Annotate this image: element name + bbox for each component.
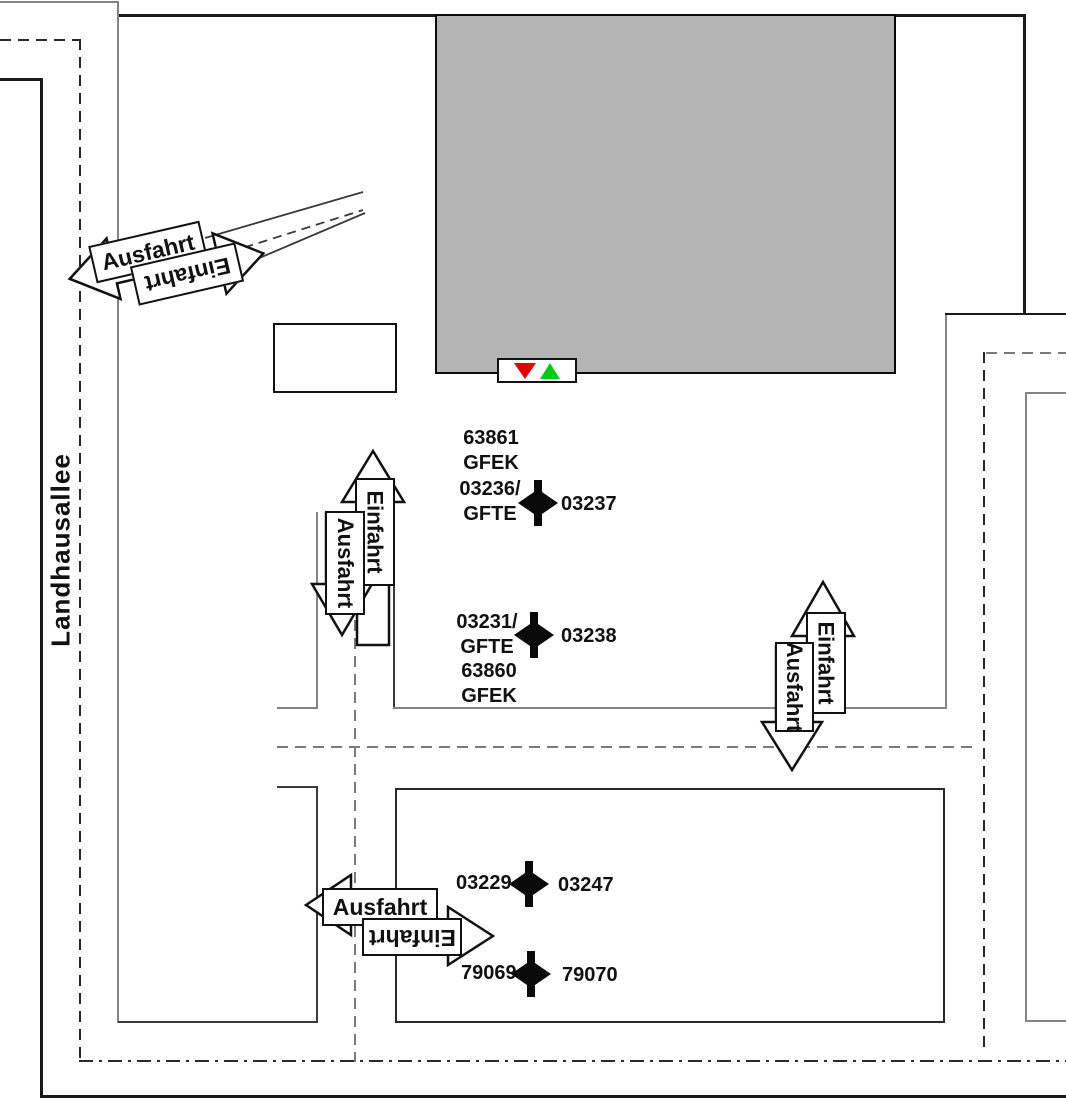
- exit-label-text: Ausfahrt: [332, 518, 358, 608]
- street-label: Landhausallee: [46, 453, 77, 647]
- boundary-line: [117, 1, 119, 1023]
- exit-label-right: Ausfahrt: [775, 642, 814, 732]
- gate-label-line: 03236/: [458, 477, 522, 502]
- boundary-line: [0, 78, 42, 81]
- entry-label-text: Einfahrt: [369, 924, 456, 951]
- gate-label-line: GFTE: [455, 635, 519, 660]
- gate-signal-sign: [497, 358, 577, 383]
- entry-label-text: Einfahrt: [813, 621, 839, 704]
- gate-symbol-icon: [514, 612, 554, 658]
- gate-label-63860: 63860 GFEK: [461, 659, 517, 709]
- exit-label-text: Ausfahrt: [782, 642, 808, 732]
- road-dashed-line: [79, 39, 81, 1062]
- gate-label-line: 63860: [461, 659, 517, 684]
- boundary-line: [1025, 392, 1066, 394]
- gate3-right-label: 03247: [558, 873, 614, 898]
- gate2-left-label: 03231/ GFTE: [455, 610, 519, 660]
- boundary-line: [40, 78, 43, 1098]
- gate3-left-label: 03229: [456, 871, 512, 896]
- gate2-right-label: 03238: [561, 624, 617, 649]
- green-up-triangle-icon: [540, 363, 560, 379]
- gate1-left-label: 03236/ GFTE: [458, 477, 522, 527]
- site-plan: Landhausallee 63861 GFEK 03236/ GFTE 032…: [0, 0, 1066, 1103]
- road-dashed-line: [79, 1060, 1066, 1062]
- small-building: [273, 323, 397, 393]
- boundary-line: [1025, 392, 1027, 1022]
- gate-label-line: 03231/: [455, 610, 519, 635]
- entry-label-bottom: Einfahrt: [362, 918, 462, 956]
- gate1-right-label: 03237: [561, 492, 617, 517]
- gate-symbol-icon: [511, 951, 551, 997]
- road-dashed-line: [354, 620, 356, 1062]
- gate-label-63861: 63861 GFEK: [463, 426, 519, 476]
- gate-label-line: GFTE: [458, 502, 522, 527]
- gate-label-line: 63861: [463, 426, 519, 451]
- gate-label-line: GFEK: [463, 451, 519, 476]
- gate-label-line: GFEK: [461, 684, 517, 709]
- road-dashed-line: [986, 352, 1066, 354]
- boundary-line: [945, 313, 1066, 315]
- road-dashed-line: [277, 746, 973, 748]
- exit-label-text: Ausfahrt: [333, 894, 428, 921]
- road-dashed-line: [0, 39, 81, 41]
- exit-label-mid-left: Ausfahrt: [325, 511, 365, 615]
- gate4-right-label: 79070: [562, 963, 618, 988]
- red-down-triangle-icon: [514, 363, 536, 379]
- parking-boundary-line: [118, 1021, 318, 1023]
- boundary-line: [1025, 1020, 1066, 1022]
- boundary-line: [1023, 14, 1026, 315]
- boundary-line: [945, 315, 947, 709]
- boundary-line: [0, 1, 119, 3]
- gate-symbol-icon: [518, 480, 558, 526]
- parking-boundary-line: [277, 707, 318, 709]
- boundary-line: [40, 1095, 1066, 1098]
- road-dashed-line: [983, 352, 985, 1048]
- gate-symbol-icon: [509, 861, 549, 907]
- main-building: [435, 14, 896, 374]
- parking-boundary-line: [277, 786, 318, 788]
- entry-label-text: Einfahrt: [362, 490, 388, 573]
